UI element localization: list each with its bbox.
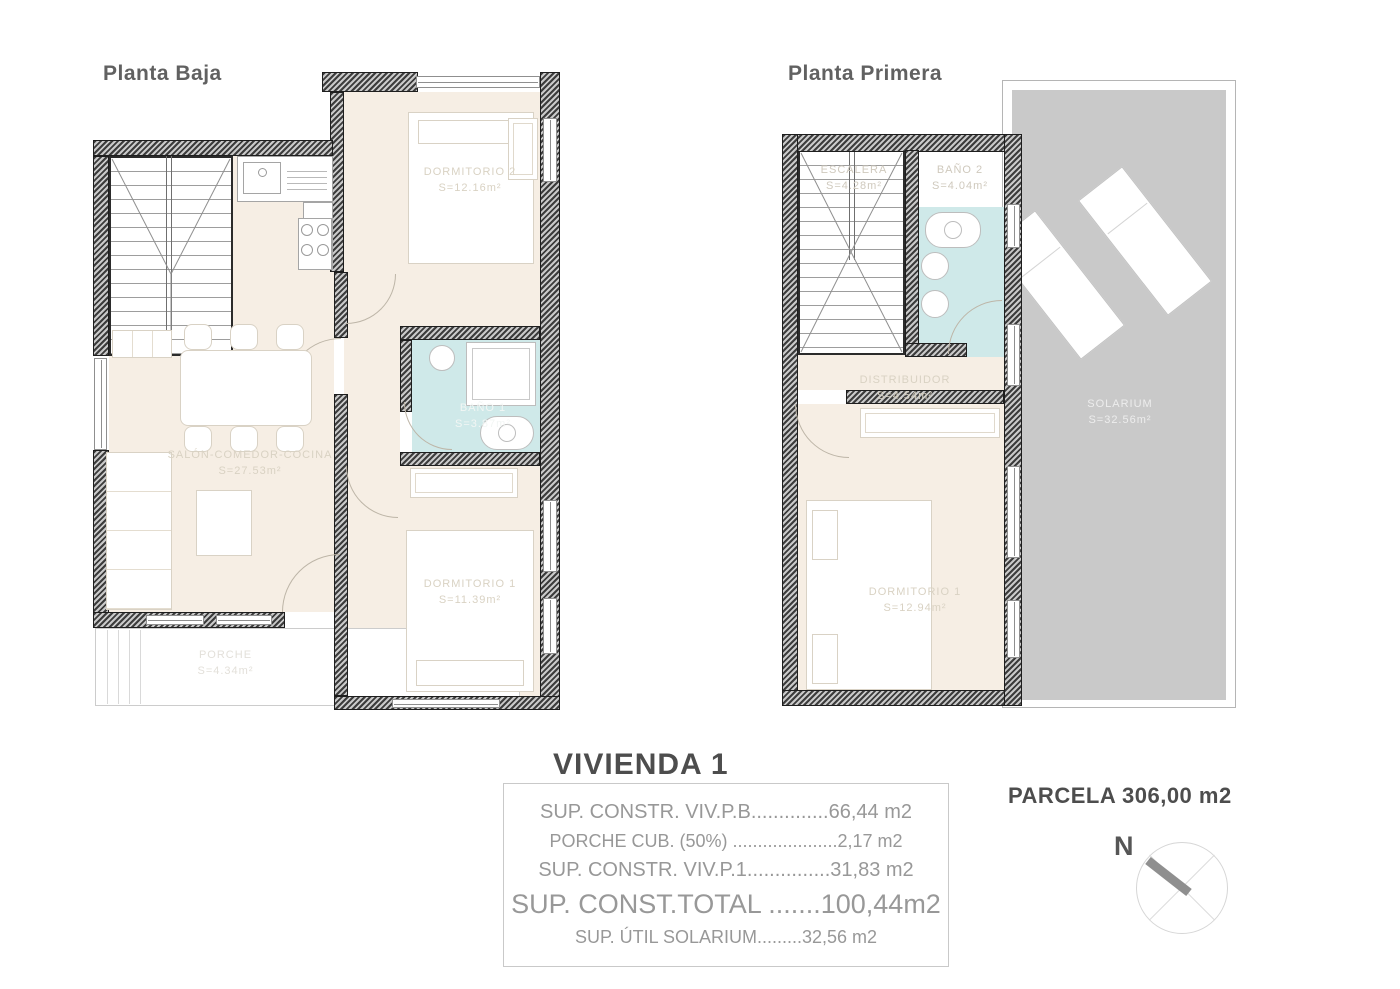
wall (782, 690, 1022, 706)
room-label-porche: PORCHE S=4.34m² (158, 647, 293, 679)
drain-board (287, 166, 327, 192)
kitchen-sink (243, 162, 281, 194)
wall (93, 156, 109, 356)
north-label: N (1114, 831, 1134, 862)
room-label-escalera: ESCALERA S=4.28m² (806, 162, 902, 194)
shower (466, 342, 536, 406)
window (543, 118, 557, 182)
summary-row: SUP. CONSTR. VIV.P.B..............66,44 … (504, 798, 948, 827)
stair-rail-pb (166, 156, 172, 356)
room-label-bano1: BAÑO 1 S=3.87m² (422, 400, 544, 432)
window (392, 699, 500, 708)
room-name: BAÑO 1 (422, 400, 544, 416)
window (1007, 600, 1020, 658)
parcela-label: PARCELA 306,00 m2 (1008, 783, 1232, 809)
room-label-distribuidor: DISTRIBUIDOR S=4.54m² (835, 372, 975, 404)
porch-steps (97, 630, 143, 704)
coffee-table (196, 490, 252, 556)
vivienda-title: VIVIENDA 1 (553, 748, 729, 782)
planta-baja-title: Planta Baja (103, 62, 222, 86)
wall (93, 140, 333, 156)
wall (400, 452, 540, 466)
dining-table (180, 350, 312, 426)
chair (230, 324, 258, 350)
faucet-icon (258, 168, 267, 177)
chair (276, 324, 304, 350)
burner-icon (317, 224, 329, 236)
room-label-dormitorio2: DORMITORIO 2 S=12.16m² (400, 164, 540, 196)
washbasin (429, 345, 455, 371)
summary-row: PORCHE CUB. (50%) .....................2… (504, 827, 948, 856)
summary-row-total: SUP. CONST.TOTAL .......100,44m2 (504, 885, 948, 923)
room-area: S=4.34m² (158, 663, 293, 679)
washbasin (921, 290, 949, 318)
room-area: S=12.94m² (845, 600, 985, 616)
room-area: S=3.87m² (422, 416, 544, 432)
pillow (416, 660, 524, 686)
wall (782, 134, 1022, 152)
room-label-solarium: SOLARIUM S=32.56m² (1055, 396, 1185, 428)
room-area: S=27.53m² (150, 463, 350, 479)
window (94, 358, 107, 450)
window (543, 500, 557, 572)
wall (322, 72, 418, 92)
window (1007, 204, 1020, 248)
pillow (812, 634, 838, 684)
room-name: BAÑO 2 (914, 162, 1006, 178)
room-area: S=4.04m² (914, 178, 1006, 194)
room-name: DISTRIBUIDOR (835, 372, 975, 388)
room-area: S=12.16m² (400, 180, 540, 196)
room-label-dormitorio1-p1: DORMITORIO 1 S=12.94m² (845, 584, 985, 616)
window (216, 615, 272, 625)
window (416, 76, 540, 88)
burner-icon (301, 224, 313, 236)
summary-row: SUP. ÚTIL SOLARIUM.........32,56 m2 (504, 923, 948, 952)
room-label-salon: SALÓN-COMEDOR-COCINA S=27.53m² (150, 447, 350, 479)
room-area: S=11.39m² (400, 592, 540, 608)
room-name: SOLARIUM (1055, 396, 1185, 412)
window (543, 598, 557, 654)
room-name: SALÓN-COMEDOR-COCINA (150, 447, 350, 463)
summary-row: SUP. CONSTR. VIV.P.1...............31,83… (504, 856, 948, 885)
hall-floor (344, 326, 400, 466)
burner-icon (301, 244, 313, 256)
wall (782, 134, 798, 706)
room-name: DORMITORIO 1 (845, 584, 985, 600)
wardrobe (860, 408, 1000, 438)
room-name: DORMITORIO 1 (400, 576, 540, 592)
window (146, 615, 204, 625)
room-area: S=32.56m² (1055, 412, 1185, 428)
floor-plan-sheet: Planta Baja (0, 0, 1400, 989)
room-area: S=4.28m² (806, 178, 902, 194)
room-name: ESCALERA (806, 162, 902, 178)
window (1007, 324, 1020, 386)
wall (334, 394, 348, 696)
burner-icon (317, 244, 329, 256)
sideboard (112, 330, 172, 358)
planta-primera-title: Planta Primera (788, 62, 942, 86)
wardrobe (410, 468, 518, 498)
washbasin (921, 252, 949, 280)
room-area: S=4.54m² (835, 388, 975, 404)
surface-summary-box: SUP. CONSTR. VIV.P.B..............66,44 … (503, 783, 949, 967)
room-label-bano2: BAÑO 2 S=4.04m² (914, 162, 1006, 194)
room-label-dormitorio1-pb: DORMITORIO 1 S=11.39m² (400, 576, 540, 608)
window (1007, 466, 1020, 558)
room-name: DORMITORIO 2 (400, 164, 540, 180)
pillow (812, 510, 838, 560)
chair (184, 324, 212, 350)
wall (400, 326, 540, 340)
room-name: PORCHE (158, 647, 293, 663)
toilet (925, 212, 981, 248)
